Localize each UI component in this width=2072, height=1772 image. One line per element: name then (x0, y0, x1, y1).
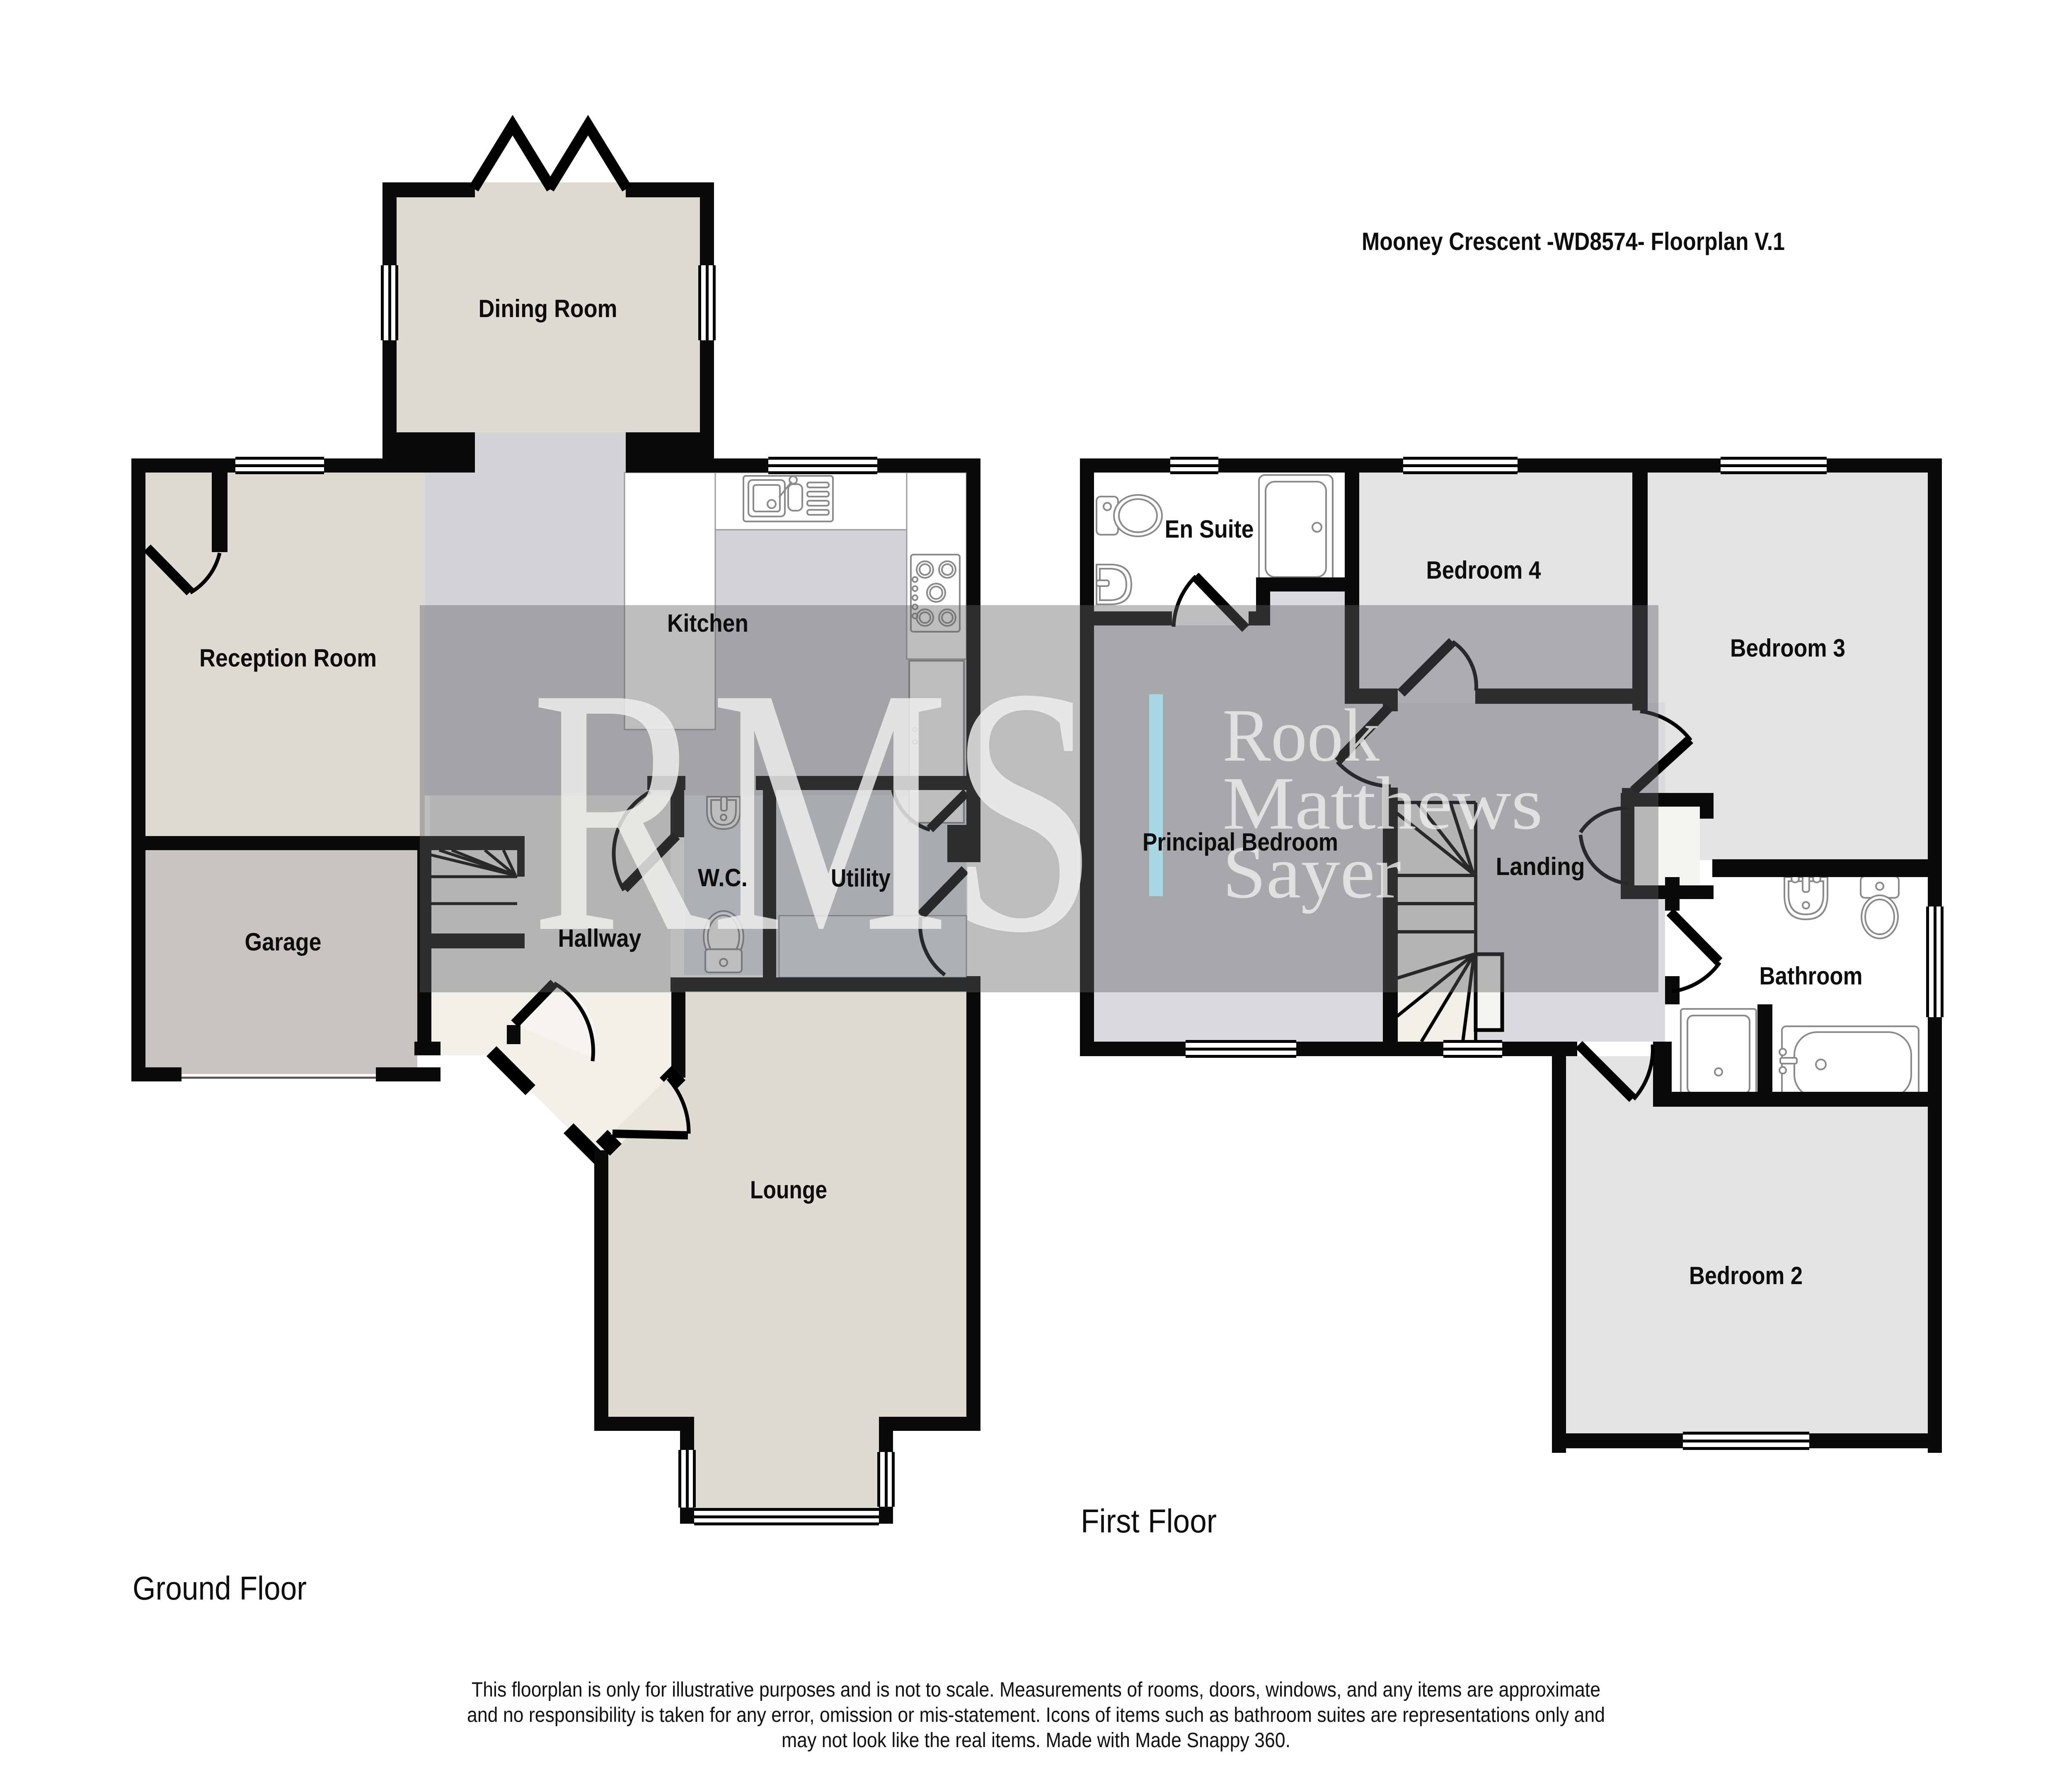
svg-text:First Floor: First Floor (1081, 1503, 1217, 1539)
svg-text:Utility: Utility (831, 864, 891, 892)
svg-text:Mooney Crescent -WD8574- Floor: Mooney Crescent -WD8574- Floorplan V.1 (1362, 228, 1785, 255)
svg-text:and no responsibility is taken: and no responsibility is taken for any e… (467, 1703, 1605, 1726)
svg-text:En Suite: En Suite (1165, 515, 1254, 543)
svg-text:Hallway: Hallway (558, 924, 642, 952)
svg-text:W.C.: W.C. (698, 864, 748, 892)
svg-text:Bedroom 3: Bedroom 3 (1730, 634, 1845, 662)
svg-text:Bedroom 2: Bedroom 2 (1689, 1262, 1803, 1290)
svg-text:Bathroom: Bathroom (1760, 962, 1863, 990)
svg-text:Garage: Garage (245, 928, 322, 956)
svg-text:Ground Floor: Ground Floor (133, 1570, 307, 1607)
svg-text:Kitchen: Kitchen (667, 609, 748, 637)
svg-text:Dining Room: Dining Room (479, 295, 617, 322)
svg-text:Principal Bedroom: Principal Bedroom (1143, 828, 1338, 856)
svg-text:Bedroom 4: Bedroom 4 (1426, 556, 1542, 584)
svg-text:Landing: Landing (1496, 853, 1585, 880)
svg-text:may not look like the real ite: may not look like the real items. Made w… (782, 1728, 1290, 1752)
svg-text:Reception Room: Reception Room (199, 644, 377, 672)
svg-text:This floorplan is only for ill: This floorplan is only for illustrative … (472, 1678, 1600, 1701)
svg-text:Lounge: Lounge (750, 1176, 827, 1204)
